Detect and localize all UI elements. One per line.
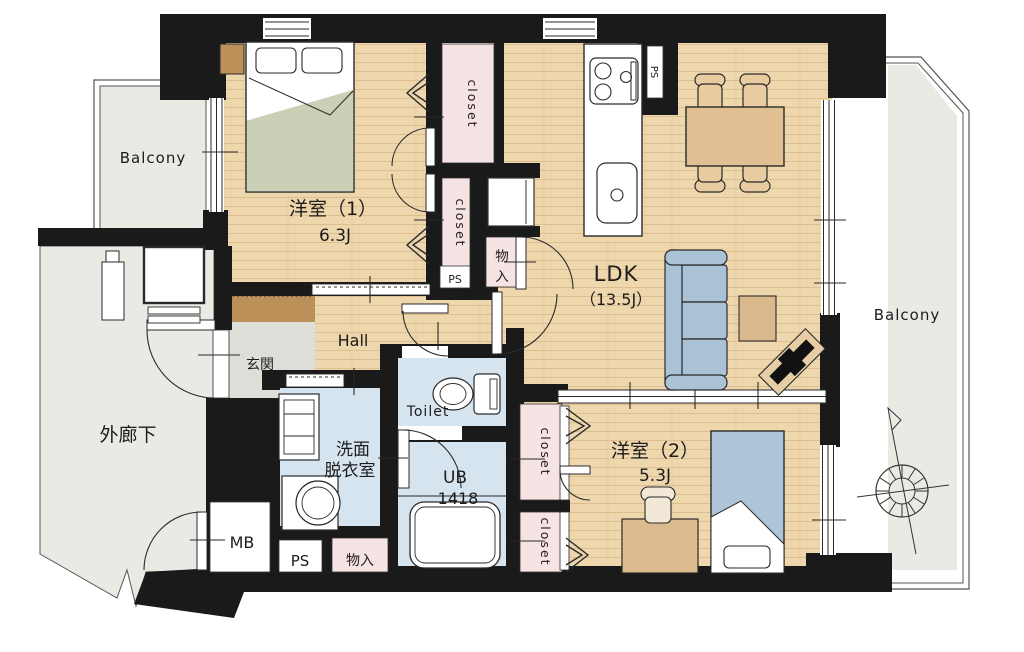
entrance-step [225,294,315,322]
monoire-mid-char1: 物 [495,249,509,265]
nightstand [220,44,244,74]
ps-top-label: PS [648,66,659,78]
monoire-bottom-label: 物入 [346,553,374,569]
bedroom2-name: 洋室（2） [611,440,699,462]
monoire-mid-char2: 入 [495,269,509,285]
desk [622,519,698,573]
ldk-size: （13.5J） [580,290,652,309]
ps-bottom-label: PS [291,552,310,570]
coffee-table [739,296,776,341]
balcony-left-label: Balcony [120,149,186,167]
closet1-bedroom2-label: closet [538,427,553,476]
balcony-right-label: Balcony [874,306,940,324]
ldk-name: LDK [594,262,639,286]
washroom-label-1: 洗面 [336,440,370,460]
closet2-bedroom2-label: closet [538,517,553,566]
ps-mid-label: PS [448,273,462,286]
hall-label: Hall [338,331,369,350]
toilet-label: Toilet [406,404,450,420]
bedroom1-size: 6.3J [319,226,351,246]
closet1-bedroom1-label: closet [465,79,480,128]
entrance-label: 玄関 [246,356,274,373]
entrance-meter-box [144,247,204,303]
bathtub [410,502,500,568]
closet2-bedroom1-label: closet [453,198,468,247]
pillow [302,48,342,73]
bath-name: UB [443,468,467,488]
vanity [279,394,319,460]
corridor-equipment [106,251,119,263]
floor-plan-svg: Balcony Balcony 外廊下 洋室（1） 6.3J LDK （13.5… [0,0,1024,652]
floor-plan: Balcony Balcony 外廊下 洋室（1） 6.3J LDK （13.5… [0,0,1024,652]
dining-table [686,107,784,166]
kitchen-sink [597,163,637,223]
mb-door-leaf [197,512,207,570]
bath-size: 1418 [438,489,479,508]
bedroom2-size: 5.3J [639,466,671,486]
toilet-tank [474,374,500,414]
ldk-door-leaf [492,292,502,354]
sofa [665,250,727,390]
pillow [724,546,770,568]
corridor-label: 外廊下 [99,424,156,446]
washroom-label-2: 脱衣室 [325,461,376,481]
kitchen [584,44,642,236]
toilet-door-leaf [402,304,448,313]
pillow [256,48,296,73]
mb-label: MB [230,533,255,552]
bath-door-leaf [398,430,409,488]
refrigerator-space [488,178,534,226]
bedroom1-name: 洋室（1） [289,198,377,220]
